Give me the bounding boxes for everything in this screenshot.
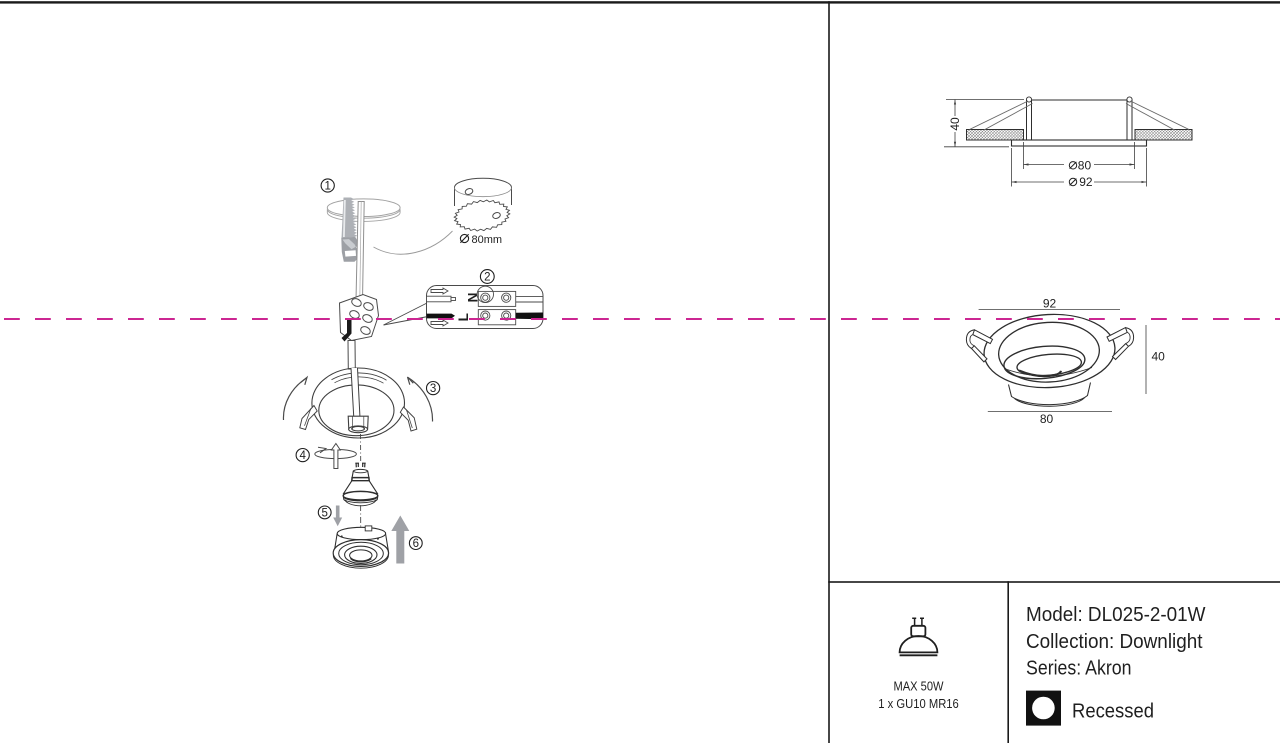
svg-text:5: 5 [321, 508, 327, 520]
svg-text:1 x GU10 MR16: 1 x GU10 MR16 [878, 697, 959, 711]
svg-text:Series: Akron: Series: Akron [1026, 657, 1132, 680]
svg-text:3: 3 [430, 383, 436, 395]
svg-text:1: 1 [324, 181, 330, 193]
svg-text:80mm: 80mm [472, 234, 503, 246]
svg-text:6: 6 [413, 538, 419, 550]
svg-text:40: 40 [1152, 349, 1166, 363]
svg-text:Recessed: Recessed [1072, 699, 1154, 722]
svg-text:2: 2 [484, 272, 490, 284]
svg-text:40: 40 [948, 117, 962, 131]
svg-text:Model: DL025-2-01W: Model: DL025-2-01W [1026, 603, 1206, 626]
svg-text:92: 92 [1043, 297, 1057, 311]
svg-text:4: 4 [299, 450, 306, 462]
svg-text:80: 80 [1078, 159, 1092, 173]
svg-text:92: 92 [1079, 175, 1093, 189]
svg-text:80: 80 [1040, 412, 1054, 426]
svg-text:L: L [456, 313, 471, 321]
svg-text:Collection: Downlight: Collection: Downlight [1026, 630, 1203, 653]
svg-text:MAX 50W: MAX 50W [894, 679, 944, 693]
